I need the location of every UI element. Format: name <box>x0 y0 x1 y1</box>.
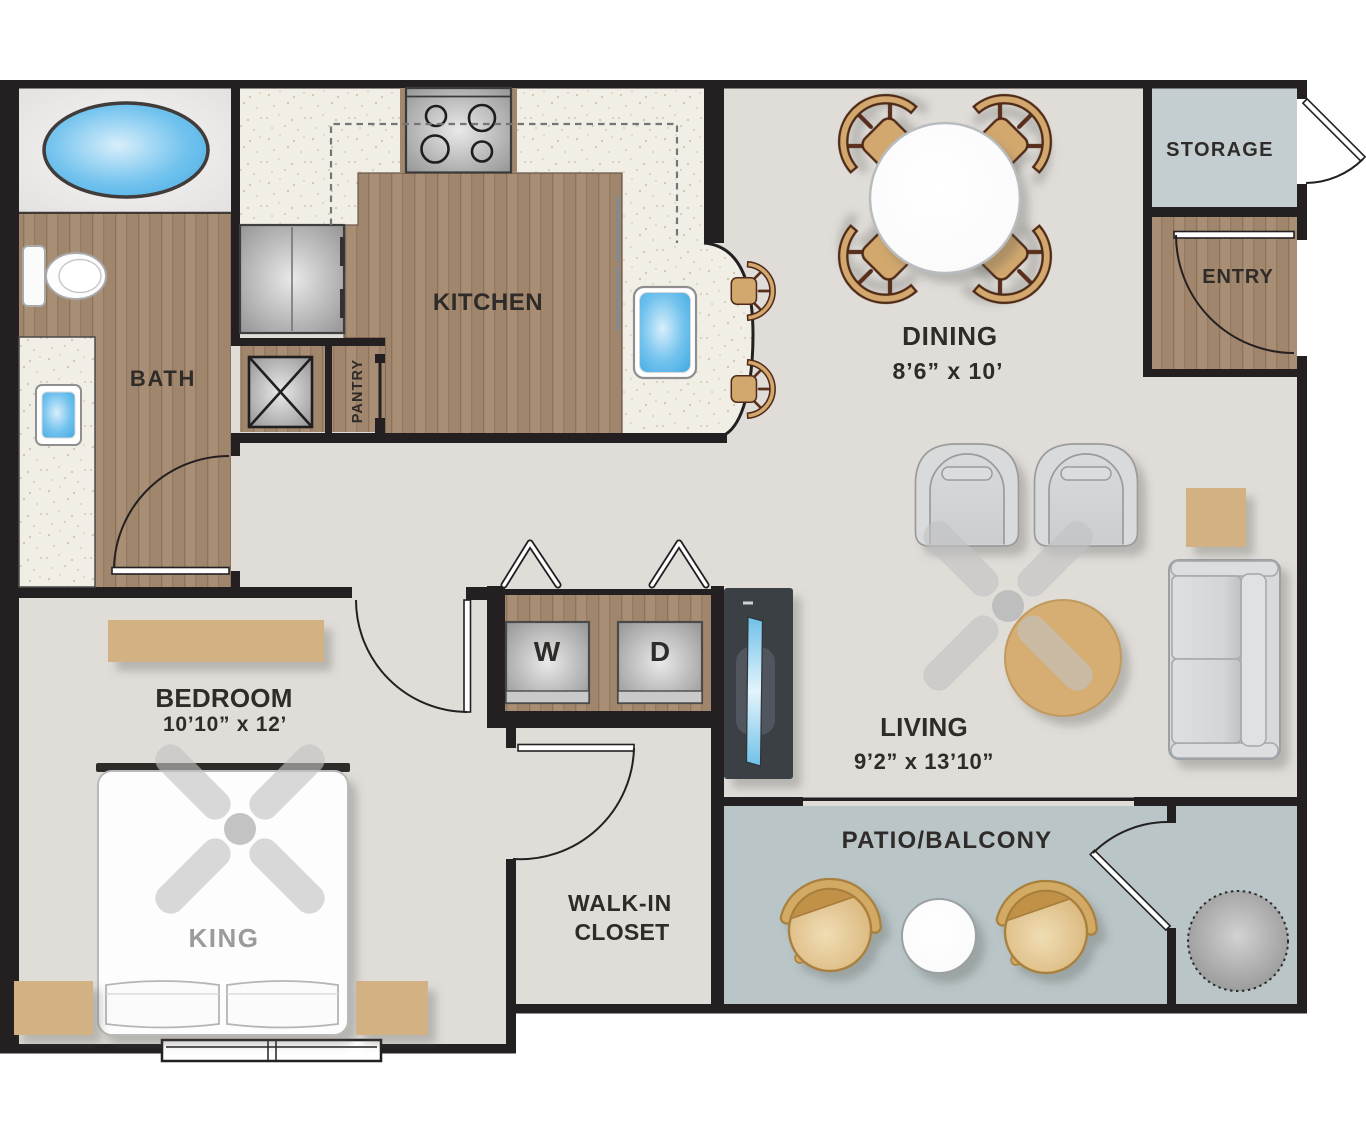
svg-text:CLOSET: CLOSET <box>574 919 669 945</box>
svg-text:LIVING: LIVING <box>880 712 968 742</box>
svg-text:W: W <box>534 636 561 667</box>
svg-text:STORAGE: STORAGE <box>1166 139 1274 161</box>
svg-text:KITCHEN: KITCHEN <box>433 289 543 316</box>
svg-text:KING: KING <box>189 923 260 953</box>
svg-text:9’2” x 13’10”: 9’2” x 13’10” <box>854 749 994 774</box>
svg-text:ENTRY: ENTRY <box>1202 266 1274 288</box>
svg-text:DINING: DINING <box>902 321 998 351</box>
svg-text:BATH: BATH <box>130 366 196 391</box>
svg-text:WALK-IN: WALK-IN <box>568 890 672 916</box>
svg-text:BEDROOM: BEDROOM <box>155 683 292 713</box>
svg-text:PATIO/BALCONY: PATIO/BALCONY <box>842 827 1053 854</box>
svg-text:10’10” x 12’: 10’10” x 12’ <box>163 713 287 736</box>
svg-text:8’6” x 10’: 8’6” x 10’ <box>892 358 1003 384</box>
svg-text:PANTRY: PANTRY <box>350 359 366 424</box>
svg-text:D: D <box>650 636 670 667</box>
